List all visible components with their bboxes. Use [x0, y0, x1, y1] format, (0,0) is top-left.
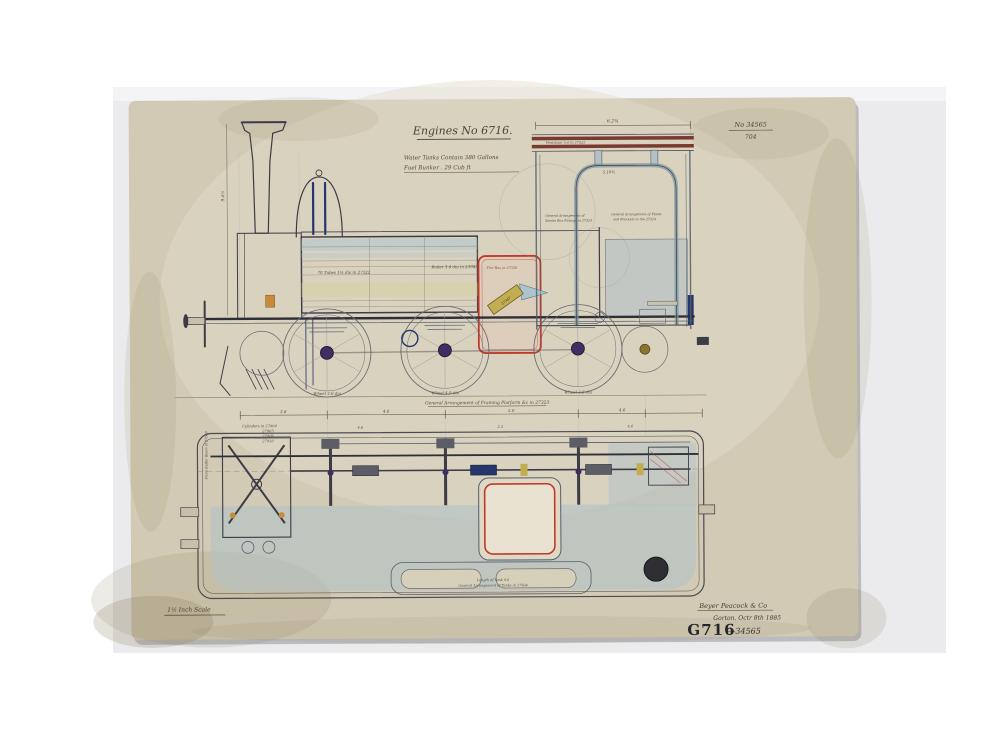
coupling [352, 466, 378, 476]
buffer-stub [188, 318, 205, 325]
axlebox [321, 439, 339, 449]
yellow-band [520, 464, 527, 476]
cab-side-wall [536, 152, 537, 330]
tank-arrangement-note: General Arrangement of Tanks in 27564 [459, 583, 528, 587]
scale-note: 1½ Inch Scale [167, 607, 211, 614]
list-item: Cylinders in 27904 [242, 424, 277, 428]
tank-length-note: Length of Tank 9.6 [476, 578, 510, 582]
plan-dim: 4.6 [626, 424, 633, 428]
end-inner-dim: 5.10½ [603, 169, 616, 174]
locomotive-drawing-photo: Engines No 6716. Water Tanks Contain 380… [0, 0, 1000, 751]
drawing-folio: 704 [745, 134, 757, 141]
ventilator-note: Ventilator 5.6 in 27522 [546, 141, 586, 145]
axle-center [576, 469, 582, 475]
axlebox [436, 438, 454, 448]
yellow-band [636, 463, 643, 475]
end-note-left: Smoke Box Fittings in 27324 [545, 219, 592, 223]
boiler-wash-blue [301, 238, 477, 251]
tank-wash-right [608, 443, 696, 505]
boiler-wash-blue-2 [301, 252, 477, 258]
framing-note: General Arrangement of Framing Platform … [425, 401, 549, 407]
axle-center [443, 469, 449, 475]
cab-side-wall [690, 151, 691, 329]
firebox-wash [478, 256, 541, 353]
wheel-label: Wheel 3.6 dia [564, 390, 592, 395]
spec-fuel-bunker: Fuel Bunker . 29 Cub ft [403, 165, 472, 171]
cab-seat [648, 301, 678, 305]
buffer-beam-note: Front Buffer Beam in 27560 [204, 430, 208, 480]
end-note-left: General Arrangement of [545, 214, 585, 218]
wheel-label: Wheel 4.0 dia [431, 390, 459, 395]
wheel-hub [320, 346, 333, 359]
drawing-canvas: Engines No 6716. Water Tanks Contain 380… [0, 0, 1000, 751]
drawing-number: No 34565 [734, 121, 767, 129]
firebox-plan-red [485, 484, 555, 554]
buffer-stub [181, 540, 199, 549]
roof-post [595, 150, 602, 165]
boiler-tubes-note: 70 Tubes 1¾ dia in 27322 [317, 270, 370, 275]
plan-dim: 4.6 [356, 426, 363, 430]
stain [806, 588, 886, 648]
chimney-height-dim: 9.4½ [220, 191, 225, 202]
dim-label: 4.6 [382, 409, 390, 414]
coupling [585, 464, 611, 474]
coupling [470, 465, 496, 475]
boiler-wash-yellow [302, 282, 478, 297]
end-note-right: and Brackets in the 27324 [613, 217, 656, 221]
firebox-note: Fire Box in 27326 [485, 266, 518, 270]
buffer-stub [699, 505, 715, 514]
rear-buffer [697, 337, 709, 345]
copper-pipe-fitting [266, 295, 275, 307]
wheel-hub [571, 342, 584, 355]
roof-post [651, 150, 658, 165]
axlebox [569, 438, 587, 448]
orange-fitting [230, 512, 236, 518]
dim-label: 3.8 [280, 409, 287, 414]
buffer-stub [181, 508, 199, 517]
orange-fitting [279, 512, 285, 518]
paper-sheet-group: Engines No 6716. Water Tanks Contain 380… [88, 78, 886, 652]
dim-label: 4.6 [618, 407, 626, 412]
end-note-right: General Arrangement of Plates [611, 212, 662, 216]
wheel-hub [438, 344, 451, 357]
plan-dim: 2.3 [496, 425, 503, 429]
list-item: 27910 [261, 439, 274, 443]
dim-label: 5.0 [508, 408, 515, 413]
trailing-hub [640, 344, 650, 354]
wheel-label: Wheel 3.6 dia [313, 391, 341, 396]
spec-water-tanks: Water Tanks Contain 380 Gallons [404, 155, 499, 161]
maker-signature: Beyer Peacock & Co [698, 602, 767, 610]
axle-center [328, 470, 334, 476]
boiler-dia-note: Boiler 3.6 dia in 23985 [430, 264, 478, 269]
stamp-number: —34565 [727, 627, 760, 636]
drawing-title: Engines No 6716. [412, 124, 513, 138]
